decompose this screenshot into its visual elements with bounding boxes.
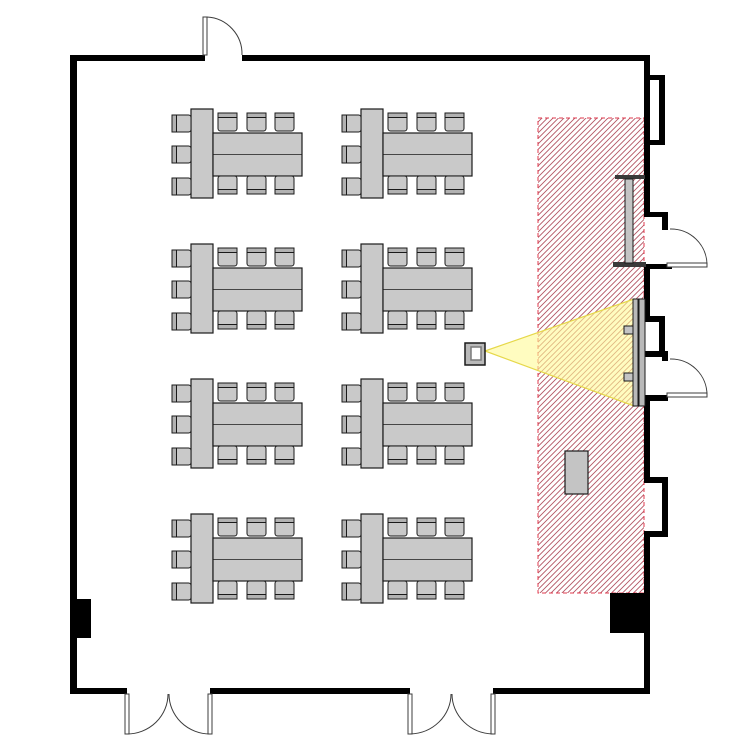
chair-back: [218, 113, 237, 118]
head-table: [361, 514, 383, 603]
chair: [388, 383, 407, 401]
whiteboard-cap: [615, 175, 645, 179]
head-table: [191, 379, 213, 468]
chair: [445, 248, 464, 266]
chair: [388, 113, 407, 131]
chair-back: [218, 325, 237, 330]
chair: [247, 113, 266, 131]
chair-back: [388, 325, 407, 330]
chair: [342, 520, 361, 537]
chair-back: [388, 595, 407, 600]
chair: [342, 583, 361, 600]
head-table: [191, 514, 213, 603]
structural-column: [610, 593, 648, 633]
floor-plan-canvas: [0, 0, 750, 750]
chair: [275, 446, 294, 464]
head-table: [191, 109, 213, 198]
chair: [275, 176, 294, 194]
screen-panel: [639, 299, 645, 406]
chair: [247, 581, 266, 599]
chair: [342, 385, 361, 402]
chair: [247, 311, 266, 329]
chair-back: [275, 325, 294, 330]
chair-back: [388, 383, 407, 388]
chair: [218, 113, 237, 131]
chair-back: [172, 448, 177, 465]
table-group: [172, 379, 302, 468]
wall-segment: [644, 316, 665, 322]
chair-back: [342, 448, 347, 465]
chair: [247, 176, 266, 194]
wall-segment: [644, 395, 650, 477]
chair-back: [247, 460, 266, 465]
chair-back: [218, 383, 237, 388]
chair: [172, 178, 191, 195]
table-group: [342, 379, 472, 468]
chair: [172, 313, 191, 330]
chair: [218, 383, 237, 401]
chair: [342, 146, 361, 163]
chair: [342, 551, 361, 568]
chair-back: [388, 113, 407, 118]
structural-column: [70, 599, 91, 638]
wall-segment: [644, 477, 668, 483]
chair: [218, 311, 237, 329]
door-leaf: [203, 17, 207, 55]
chair: [218, 581, 237, 599]
door-leaf: [491, 694, 495, 734]
chair-back: [445, 595, 464, 600]
door-leaf: [208, 694, 212, 734]
chair-back: [445, 460, 464, 465]
chair: [172, 250, 191, 267]
chair-back: [218, 248, 237, 253]
wall-segment: [662, 483, 668, 531]
chair: [172, 416, 191, 433]
wall-segment: [70, 55, 205, 61]
projector-lens: [471, 347, 481, 360]
right-lower-door: [667, 359, 707, 397]
chair-back: [247, 113, 266, 118]
chair-back: [417, 383, 436, 388]
chair: [417, 248, 436, 266]
chair: [417, 383, 436, 401]
chair: [172, 281, 191, 298]
chair-back: [172, 281, 177, 298]
chair-back: [445, 325, 464, 330]
chair-back: [342, 385, 347, 402]
podium: [565, 451, 588, 494]
chair-back: [247, 325, 266, 330]
chair-back: [275, 190, 294, 195]
screen-bracket: [624, 373, 633, 381]
chair-back: [417, 518, 436, 523]
chair-back: [247, 595, 266, 600]
chair: [172, 448, 191, 465]
door-leaf: [408, 694, 412, 734]
wall-segment: [662, 217, 668, 230]
door-leaf: [667, 393, 707, 397]
chair-back: [172, 551, 177, 568]
chair-back: [445, 190, 464, 195]
chair: [445, 446, 464, 464]
head-table: [191, 244, 213, 333]
door-swing-arc: [452, 694, 493, 734]
chair: [247, 446, 266, 464]
whiteboard-stem: [625, 179, 633, 263]
chair: [172, 520, 191, 537]
floor-plan-svg: [0, 0, 750, 750]
chair-back: [417, 460, 436, 465]
door-swing-arc: [670, 229, 707, 265]
head-table: [361, 109, 383, 198]
chair-back: [172, 115, 177, 132]
wall-segment: [644, 212, 668, 217]
chair-back: [172, 520, 177, 537]
chair-back: [247, 190, 266, 195]
screen-bracket: [624, 326, 633, 334]
chair: [275, 581, 294, 599]
chair-back: [388, 460, 407, 465]
chair-back: [172, 313, 177, 330]
chair: [172, 583, 191, 600]
chair-back: [417, 325, 436, 330]
wall-segment: [70, 688, 127, 694]
table-group: [342, 514, 472, 603]
chair-back: [417, 113, 436, 118]
wall-segment: [210, 688, 410, 694]
chair-back: [417, 595, 436, 600]
tables-layer: [172, 109, 472, 603]
chair: [342, 313, 361, 330]
chair-back: [342, 146, 347, 163]
wall-segment: [70, 55, 77, 694]
chair: [247, 383, 266, 401]
chair-back: [417, 190, 436, 195]
chair-back: [172, 146, 177, 163]
chair-back: [445, 113, 464, 118]
chair: [388, 248, 407, 266]
chair-back: [445, 248, 464, 253]
door-swing-arc: [410, 694, 451, 734]
chair: [388, 311, 407, 329]
wall-segment: [493, 688, 650, 694]
chair: [417, 311, 436, 329]
chair-back: [172, 178, 177, 195]
chair: [445, 581, 464, 599]
chair: [388, 518, 407, 536]
chair-back: [445, 383, 464, 388]
chair-back: [342, 313, 347, 330]
chair-back: [247, 518, 266, 523]
chair: [172, 551, 191, 568]
chair: [445, 113, 464, 131]
table-group: [172, 514, 302, 603]
chair: [342, 416, 361, 433]
chair: [275, 518, 294, 536]
chair: [417, 446, 436, 464]
chair-back: [275, 383, 294, 388]
wall-segment: [659, 322, 665, 353]
door-swing-arc: [207, 17, 242, 55]
table-group: [342, 109, 472, 198]
chair: [218, 518, 237, 536]
wall-segment: [644, 140, 665, 145]
chair-back: [172, 385, 177, 402]
chair: [388, 446, 407, 464]
chair-back: [275, 595, 294, 600]
door-leaf: [667, 263, 707, 267]
chair-back: [247, 248, 266, 253]
chair: [275, 248, 294, 266]
wall-segment: [662, 351, 668, 361]
bottom-left-double-door: [125, 694, 212, 734]
chair: [388, 176, 407, 194]
chair: [218, 176, 237, 194]
chair: [275, 113, 294, 131]
chair: [445, 518, 464, 536]
chair: [445, 383, 464, 401]
table-group: [172, 244, 302, 333]
chair: [342, 250, 361, 267]
bottom-right-double-door: [408, 694, 495, 734]
chair-back: [417, 248, 436, 253]
wall-segment: [659, 80, 665, 140]
wall-segment: [242, 55, 650, 61]
chair-back: [445, 518, 464, 523]
chair-back: [342, 583, 347, 600]
head-table: [361, 244, 383, 333]
chair-back: [342, 178, 347, 195]
chair-back: [275, 518, 294, 523]
chair-back: [342, 520, 347, 537]
chair: [417, 518, 436, 536]
chair: [172, 385, 191, 402]
door-swing-arc: [670, 359, 707, 395]
chair-back: [342, 250, 347, 267]
chair: [247, 518, 266, 536]
chair: [417, 176, 436, 194]
screen-panel: [633, 299, 638, 406]
chair-back: [247, 383, 266, 388]
chair: [172, 115, 191, 132]
chair: [218, 446, 237, 464]
chair: [342, 178, 361, 195]
chair-back: [218, 460, 237, 465]
chair: [275, 383, 294, 401]
chair: [247, 248, 266, 266]
chair: [445, 311, 464, 329]
projector: [465, 343, 485, 365]
chair: [218, 248, 237, 266]
door-swing-arc: [127, 694, 168, 734]
chair-back: [275, 460, 294, 465]
chair-back: [275, 248, 294, 253]
wall-segment: [644, 75, 665, 80]
door-swing-arc: [169, 694, 210, 734]
top-entry-door: [203, 17, 242, 55]
chair-back: [275, 113, 294, 118]
chair-back: [218, 518, 237, 523]
chair: [388, 581, 407, 599]
chair-back: [218, 190, 237, 195]
chair-back: [388, 518, 407, 523]
chair: [342, 448, 361, 465]
table-group: [342, 244, 472, 333]
chair: [172, 146, 191, 163]
chair-back: [342, 115, 347, 132]
chair: [445, 176, 464, 194]
chair: [342, 281, 361, 298]
chair: [342, 115, 361, 132]
chair-back: [342, 281, 347, 298]
chair-back: [342, 416, 347, 433]
chair-back: [342, 551, 347, 568]
chair: [417, 113, 436, 131]
chair: [275, 311, 294, 329]
chair-back: [218, 595, 237, 600]
chair: [417, 581, 436, 599]
chair-back: [388, 248, 407, 253]
head-table: [361, 379, 383, 468]
right-upper-door: [667, 229, 707, 267]
table-group: [172, 109, 302, 198]
door-leaf: [125, 694, 129, 734]
chair-back: [172, 250, 177, 267]
chair-back: [172, 583, 177, 600]
chair-back: [388, 190, 407, 195]
chair-back: [172, 416, 177, 433]
